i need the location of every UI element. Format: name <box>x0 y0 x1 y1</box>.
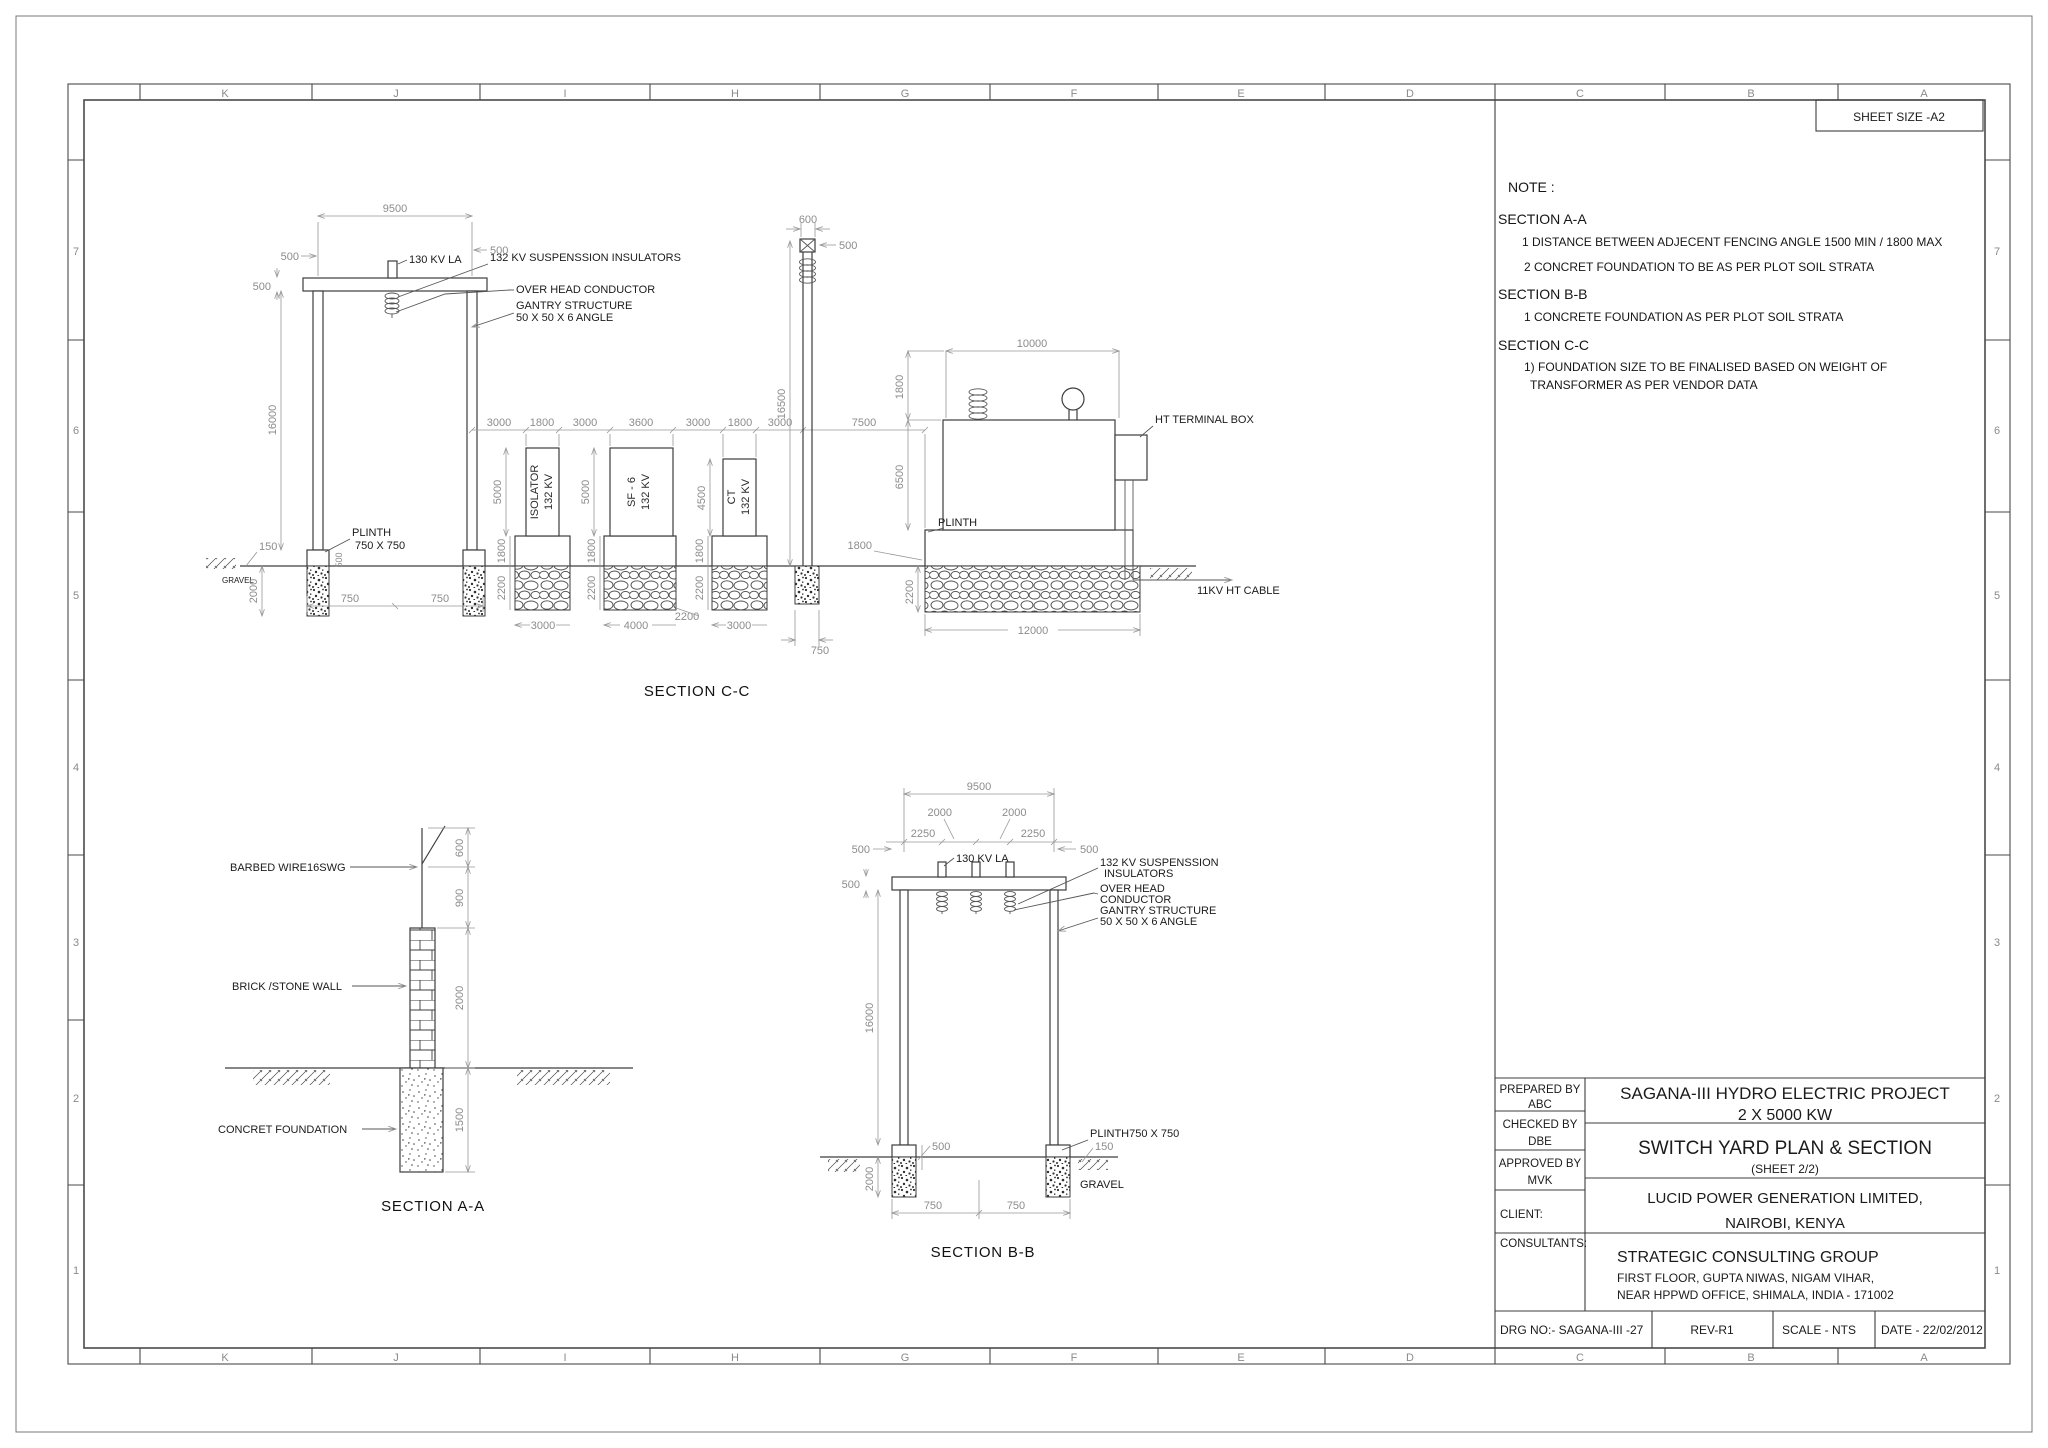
grid-number: 7 <box>73 246 79 258</box>
drawing-sheet: K J I H G F E D C B A K J I H G F E D C … <box>0 0 2048 1448</box>
dim-label: 500 <box>852 844 870 856</box>
la-label: 130 KV LA <box>409 254 462 266</box>
dim-label: 2200 <box>904 580 916 604</box>
dim-label: 5000 <box>580 480 592 504</box>
grid-letter: C <box>1576 1352 1584 1364</box>
concrete-foundation-label: CONCRET FOUNDATION <box>218 1124 347 1136</box>
plinth <box>604 536 676 566</box>
grid-number: 4 <box>73 762 79 774</box>
gantry-beam <box>303 278 487 291</box>
dim-label: 5000 <box>492 480 504 504</box>
plinth <box>515 536 570 566</box>
foundation <box>307 566 329 616</box>
sheet-size-label: SHEET SIZE -A2 <box>1853 110 1945 124</box>
grid-number: 5 <box>73 590 79 602</box>
prepared-by-label: PREPARED BY <box>1500 1084 1581 1096</box>
dim-label: 10000 <box>1017 338 1048 350</box>
dim-label: 150 <box>259 541 277 553</box>
drawing-title: SWITCH YARD PLAN & SECTION <box>1638 1138 1932 1159</box>
plinth-label: PLINTH <box>352 527 391 539</box>
dim-label: 500 <box>253 281 271 293</box>
dim-label: 750 <box>341 593 359 605</box>
gantry-beam <box>892 877 1066 890</box>
ht-terminal-box-label: HT TERMINAL BOX <box>1155 414 1254 426</box>
ht-terminal-box <box>1115 435 1147 480</box>
gantry-leg-right <box>467 291 477 550</box>
foundation <box>463 566 485 616</box>
dim-label: 2000 <box>1002 807 1026 819</box>
transformer-foundation <box>925 566 1140 612</box>
grid-number: 3 <box>73 937 79 949</box>
cc-equipment: ISOLATOR 132 KV SF - 6 132 KV CT 132 KV <box>515 448 767 610</box>
gantry-leg-right <box>1050 890 1058 1145</box>
grid-number: 3 <box>1994 937 2000 949</box>
dim-label: 1800 <box>848 540 872 552</box>
section-aa: BARBED WIRE16SWG BRICK /STONE WALL CONCR… <box>218 826 633 1215</box>
section-bb-caption: SECTION B-B <box>931 1244 1036 1261</box>
dim-label: 2200 <box>675 611 699 623</box>
grid-number: 4 <box>1994 762 2000 774</box>
dim-label: 500 <box>334 552 344 567</box>
grid-number: 7 <box>1994 246 2000 258</box>
grid-letter: A <box>1920 88 1928 100</box>
grid-letter: A <box>1920 1352 1928 1364</box>
section-cc: 130 KV LA 132 KV SUSPENSSION INSULATORS … <box>206 203 1280 700</box>
prepared-by-value: ABC <box>1528 1099 1552 1111</box>
lightning-arrester <box>938 862 946 877</box>
overhead-conductor-label: OVER HEAD CONDUCTOR <box>516 284 655 296</box>
plinth <box>892 1145 916 1157</box>
grid-number: 6 <box>73 425 79 437</box>
barbed-wire-label: BARBED WIRE16SWG <box>230 862 346 874</box>
dim-label: 600 <box>799 214 817 226</box>
grid-letter: I <box>563 88 566 100</box>
brick-wall <box>410 928 435 1068</box>
consultant-address2: NEAR HPPWD OFFICE, SHIMALA, INDIA - 1710… <box>1617 1288 1894 1302</box>
dim-label: 1800 <box>694 539 706 563</box>
dim-label: 16000 <box>864 1003 876 1034</box>
overhead-conductor-line <box>396 290 510 312</box>
section-bb: 9500 2000 2000 2250 2250 500 500 500 130… <box>820 781 1219 1261</box>
soil-hatch <box>206 558 236 569</box>
sf6-label: SF - 6 <box>626 477 638 507</box>
gantry-structure-label: GANTRY STRUCTURE <box>516 300 632 312</box>
soil-hatch <box>828 1159 860 1172</box>
dim-label: 3600 <box>629 417 653 429</box>
dim-label: 1800 <box>496 539 508 563</box>
dim-label: 12000 <box>1018 625 1049 637</box>
dim-label: 500 <box>839 240 857 252</box>
cc-pole: 600 500 16500 750 <box>776 214 857 657</box>
grid-letter: F <box>1071 88 1078 100</box>
dim-label: 1800 <box>728 417 752 429</box>
note-item: TRANSFORMER AS PER VENDOR DATA <box>1530 378 1758 392</box>
isolator-label: ISOLATOR <box>529 465 541 520</box>
note-item: 1 CONCRETE FOUNDATION AS PER PLOT SOIL S… <box>1524 310 1843 324</box>
dim-label: 9500 <box>967 781 991 793</box>
project-title-line1: SAGANA-III HYDRO ELECTRIC PROJECT <box>1620 1084 1950 1103</box>
transformer-body <box>943 420 1115 530</box>
dim-label: 500 <box>490 245 508 257</box>
section-cc-caption: SECTION C-C <box>644 683 750 700</box>
grid-number: 6 <box>1994 425 2000 437</box>
dim-label: 2000 <box>248 579 260 603</box>
plinth <box>463 550 485 566</box>
ct-label: CT <box>726 489 738 504</box>
notes-title: NOTE : <box>1508 179 1555 195</box>
soil-hatch <box>517 1070 610 1085</box>
grid-letters-bottom: K J I H G F E D C B A <box>221 1352 1928 1364</box>
dim-label: 750 <box>431 593 449 605</box>
note-item: 2 CONCRET FOUNDATION TO BE AS PER PLOT S… <box>1524 260 1874 274</box>
grid-letter: F <box>1071 1352 1078 1364</box>
dim-label: 600 <box>454 839 466 857</box>
note-heading: SECTION C-C <box>1498 337 1589 353</box>
approved-by-value: MVK <box>1528 1175 1553 1187</box>
soil-hatch <box>253 1070 330 1085</box>
foundation <box>892 1157 916 1197</box>
grid-number: 2 <box>73 1093 79 1105</box>
gravel-label: GRAVEL <box>1080 1179 1124 1191</box>
transformer-plinth <box>925 530 1133 566</box>
gantry-leg-left <box>313 291 323 550</box>
note-item: 1) FOUNDATION SIZE TO BE FINALISED BASED… <box>1524 360 1887 374</box>
title-block: PREPARED BY ABC CHECKED BY DBE APPROVED … <box>1495 1078 1985 1348</box>
grid-letters-top: K J I H G F E D C B A <box>221 88 1928 100</box>
plinth-label: PLINTH750 X 750 <box>1090 1128 1179 1140</box>
foundation <box>1046 1157 1070 1197</box>
dim-label: 4000 <box>624 620 648 632</box>
dim-label: 7500 <box>852 417 876 429</box>
dim-label: 3000 <box>487 417 511 429</box>
grid-letter: E <box>1237 1352 1244 1364</box>
suspension-insulators-label: 132 KV SUSPENSSION INSULATORS <box>490 252 681 264</box>
dim-label: 500 <box>1080 844 1098 856</box>
plinth <box>712 536 767 566</box>
brick-wall-label: BRICK /STONE WALL <box>232 981 342 993</box>
plinth-size-label: 750 X 750 <box>355 540 405 552</box>
grid-letter: H <box>731 88 739 100</box>
dim-label: 2000 <box>864 1167 876 1191</box>
dim-label: 3000 <box>573 417 597 429</box>
client-name-line2: NAIROBI, KENYA <box>1725 1215 1845 1232</box>
dim-label: 900 <box>454 889 466 907</box>
dim-label: 2200 <box>694 576 706 600</box>
soil-hatch <box>1150 568 1192 580</box>
dim-label: 2000 <box>928 807 952 819</box>
grid-number: 5 <box>1994 590 2000 602</box>
note-heading: SECTION A-A <box>1498 211 1587 227</box>
dim-label: 2200 <box>496 576 508 600</box>
grid-number: 2 <box>1994 1093 2000 1105</box>
suspension-insulator-coil <box>385 293 399 318</box>
transformer-bushing-coil <box>969 389 987 419</box>
rev: REV-R1 <box>1690 1323 1734 1337</box>
grid-numbers-left: 7 6 5 4 3 2 1 <box>73 246 79 1277</box>
conservator <box>1062 388 1084 410</box>
dim-label: 6500 <box>894 465 906 489</box>
soil-hatch <box>1078 1159 1108 1170</box>
gantry-angle-label: 50 X 50 X 6 ANGLE <box>516 312 613 324</box>
pole-insulator-coil <box>800 259 816 283</box>
dim-label: 2200 <box>586 576 598 600</box>
project-title-line2: 2 X 5000 KW <box>1738 1107 1833 1124</box>
isolator-kv-label: 132 KV <box>543 473 555 510</box>
dim-label: 2250 <box>1021 828 1045 840</box>
plinth-label: PLINTH <box>938 517 977 529</box>
consultant-name: STRATEGIC CONSULTING GROUP <box>1617 1249 1879 1266</box>
section-aa-caption: SECTION A-A <box>381 1198 485 1215</box>
dim-label: 500 <box>932 1141 950 1153</box>
dim-label: 9500 <box>383 203 407 215</box>
lightning-arrester <box>388 261 397 278</box>
dim-label: 1800 <box>530 417 554 429</box>
dim-label: 1800 <box>586 539 598 563</box>
dim-label: 500 <box>842 879 860 891</box>
foundation <box>604 566 676 610</box>
grid-letter: H <box>731 1352 739 1364</box>
checked-by-label: CHECKED BY <box>1503 1119 1578 1131</box>
foundation <box>515 566 570 610</box>
dim-label: 3000 <box>531 620 555 632</box>
grid-letter: I <box>563 1352 566 1364</box>
grid-numbers-right: 7 6 5 4 3 2 1 <box>1994 246 2000 1277</box>
concrete-foundation <box>400 1068 443 1172</box>
dim-label: 1800 <box>894 375 906 399</box>
grid-number: 1 <box>73 1265 79 1277</box>
grid-letter: E <box>1237 88 1244 100</box>
plinth <box>1046 1145 1070 1157</box>
grid-letter: G <box>901 88 910 100</box>
dim-label: 150 <box>1095 1141 1113 1153</box>
note-item: 1 DISTANCE BETWEEN ADJECENT FENCING ANGL… <box>1522 235 1942 249</box>
ct-kv-label: 132 KV <box>740 478 752 515</box>
suspension-insulators-label2: INSULATORS <box>1104 868 1173 880</box>
drg-no: DRG NO:- SAGANA-III -27 <box>1500 1323 1644 1337</box>
foundation <box>795 566 819 604</box>
date: DATE - 22/02/2012 <box>1881 1323 1983 1337</box>
approved-by-label: APPROVED BY <box>1499 1158 1582 1170</box>
grid-letter: B <box>1747 1352 1754 1364</box>
la-label: 130 KV LA <box>956 853 1009 865</box>
barbed-wire <box>422 826 445 864</box>
sheet-note: (SHEET 2/2) <box>1751 1162 1819 1176</box>
notes: NOTE : SECTION A-A 1 DISTANCE BETWEEN AD… <box>1498 179 1942 392</box>
dim-label: 2000 <box>454 986 466 1010</box>
dim-label: 16000 <box>267 405 279 436</box>
grid-letter: D <box>1406 1352 1414 1364</box>
note-heading: SECTION B-B <box>1498 286 1587 302</box>
consultants-label: CONSULTANTS: <box>1500 1238 1587 1250</box>
dim-label: 1500 <box>454 1108 466 1132</box>
dim-label: 3000 <box>727 620 751 632</box>
grid-letter: B <box>1747 88 1754 100</box>
sf6-kv-label: 132 KV <box>640 473 652 510</box>
grid-letter: G <box>901 1352 910 1364</box>
client-label: CLIENT: <box>1500 1209 1543 1221</box>
dim-label: 2250 <box>911 828 935 840</box>
suspension-insulator-coil <box>937 892 1016 914</box>
grid-letter: C <box>1576 88 1584 100</box>
client-name-line1: LUCID POWER GENERATION LIMITED, <box>1647 1190 1923 1207</box>
dim-label: 16500 <box>776 389 788 420</box>
checked-by-value: DBE <box>1528 1136 1552 1148</box>
dim-label: 500 <box>281 251 299 263</box>
grid-letter: J <box>393 88 399 100</box>
plinth <box>307 550 329 566</box>
dim-label: 4500 <box>696 486 708 510</box>
grid-letter: K <box>221 88 229 100</box>
dim-label: 3000 <box>686 417 710 429</box>
foundation <box>712 566 767 610</box>
consultant-address1: FIRST FLOOR, GUPTA NIWAS, NIGAM VIHAR, <box>1617 1271 1874 1285</box>
ht-cable-label: 11KV HT CABLE <box>1197 585 1280 597</box>
grid-letter: K <box>221 1352 229 1364</box>
grid-letter: D <box>1406 88 1414 100</box>
dim-label: 750 <box>1007 1200 1025 1212</box>
scale: SCALE - NTS <box>1782 1323 1856 1337</box>
dim-label: 750 <box>924 1200 942 1212</box>
dim-label: 750 <box>811 645 829 657</box>
gantry-angle-label: 50 X 50 X 6 ANGLE <box>1100 916 1197 928</box>
drawing-page: K J I H G F E D C B A K J I H G F E D C … <box>0 0 2048 1448</box>
grid-letter: J <box>393 1352 399 1364</box>
grid-ticks <box>68 84 2010 1364</box>
grid-number: 1 <box>1994 1265 2000 1277</box>
gantry-leg-left <box>900 890 908 1145</box>
